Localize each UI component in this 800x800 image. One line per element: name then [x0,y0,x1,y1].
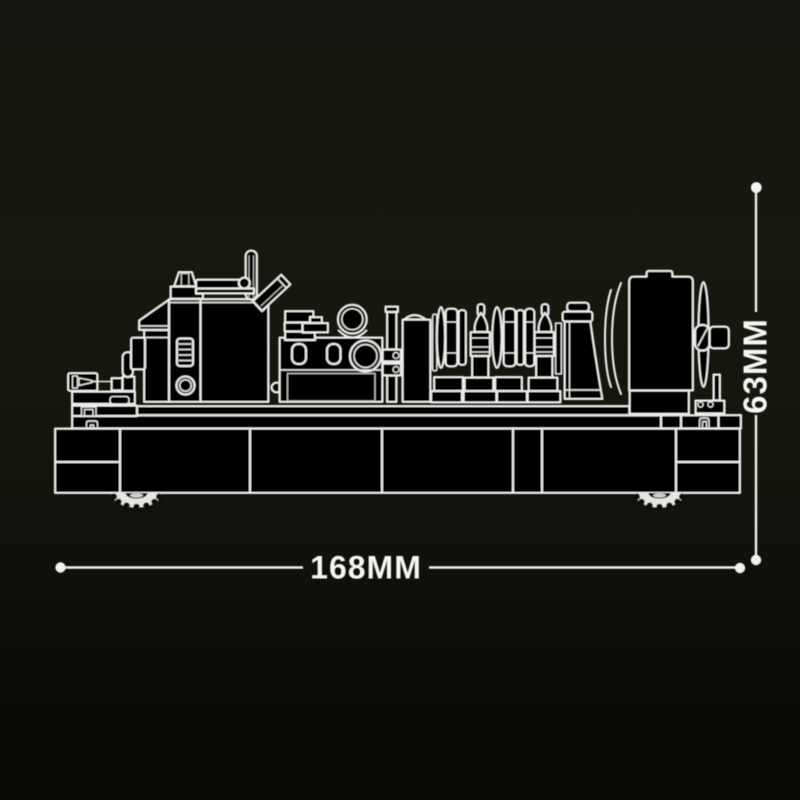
svg-text:168MM: 168MM [310,550,422,586]
svg-text:63MM: 63MM [737,318,774,414]
